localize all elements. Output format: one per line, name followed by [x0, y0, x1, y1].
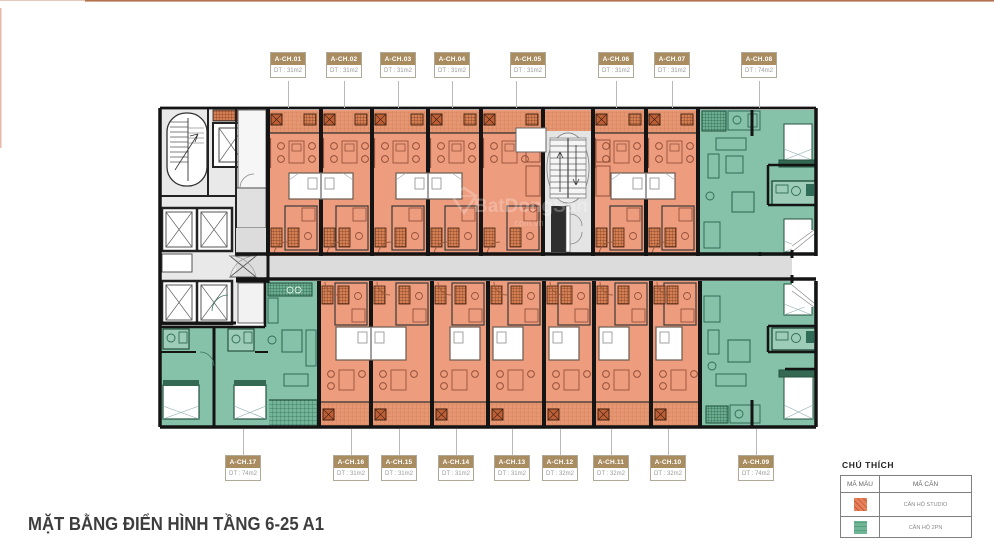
svg-text:.com.vn: .com.vn — [512, 218, 544, 228]
svg-text:BatDongSan: BatDongSan — [474, 196, 588, 217]
